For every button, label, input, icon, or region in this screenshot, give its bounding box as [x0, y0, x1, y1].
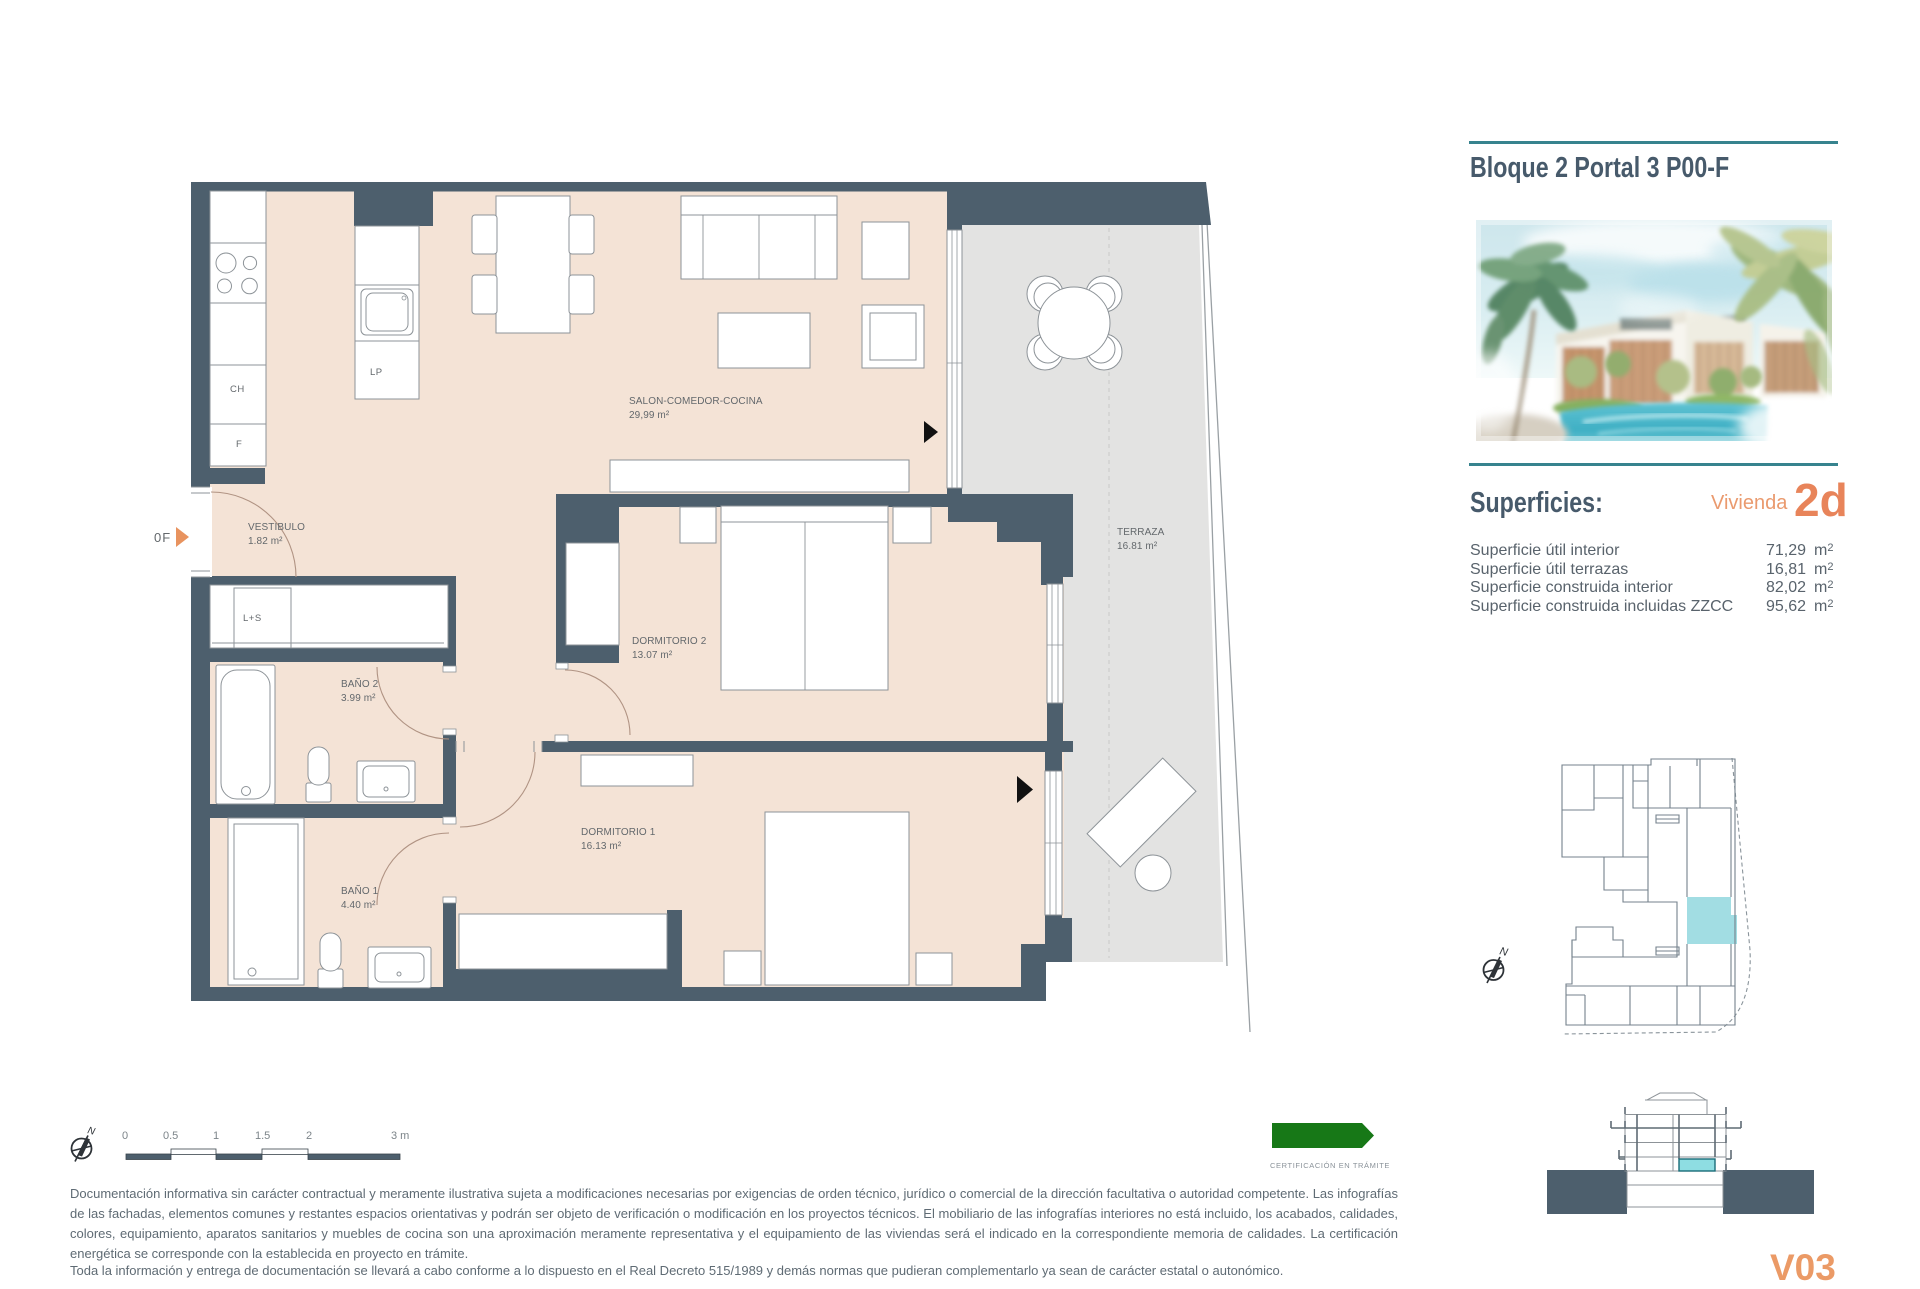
- svg-text:0.5: 0.5: [163, 1130, 178, 1142]
- svg-text:1.82 m²: 1.82 m²: [248, 536, 283, 547]
- svg-text:N: N: [86, 1125, 97, 1138]
- svg-text:13.07 m²: 13.07 m²: [632, 650, 673, 661]
- svg-text:1: 1: [213, 1130, 219, 1142]
- svg-text:DORMITORIO 1: DORMITORIO 1: [581, 827, 656, 838]
- svg-text:3.99 m²: 3.99 m²: [341, 693, 376, 704]
- svg-text:L+S: L+S: [243, 613, 262, 624]
- svg-text:BAÑO 2: BAÑO 2: [341, 677, 379, 690]
- svg-text:1.5: 1.5: [255, 1130, 270, 1142]
- svg-text:0F: 0F: [154, 530, 171, 545]
- svg-text:F: F: [236, 439, 242, 450]
- svg-text:2: 2: [306, 1130, 312, 1142]
- svg-text:N: N: [1498, 945, 1509, 959]
- svg-text:SALON-COMEDOR-COCINA: SALON-COMEDOR-COCINA: [629, 396, 763, 407]
- svg-text:0: 0: [122, 1130, 128, 1142]
- svg-text:VESTIBULO: VESTIBULO: [248, 522, 305, 533]
- svg-text:BAÑO 1: BAÑO 1: [341, 884, 379, 897]
- svg-text:29,99 m²: 29,99 m²: [629, 410, 670, 421]
- svg-text:3 m: 3 m: [391, 1130, 409, 1142]
- svg-text:DORMITORIO 2: DORMITORIO 2: [632, 636, 707, 647]
- svg-text:CH: CH: [230, 384, 245, 395]
- svg-text:16.13 m²: 16.13 m²: [581, 841, 622, 852]
- svg-text:4.40 m²: 4.40 m²: [341, 900, 376, 911]
- svg-text:TERRAZA: TERRAZA: [1117, 527, 1165, 538]
- svg-text:16.81 m²: 16.81 m²: [1117, 541, 1158, 552]
- svg-text:LP: LP: [370, 367, 383, 378]
